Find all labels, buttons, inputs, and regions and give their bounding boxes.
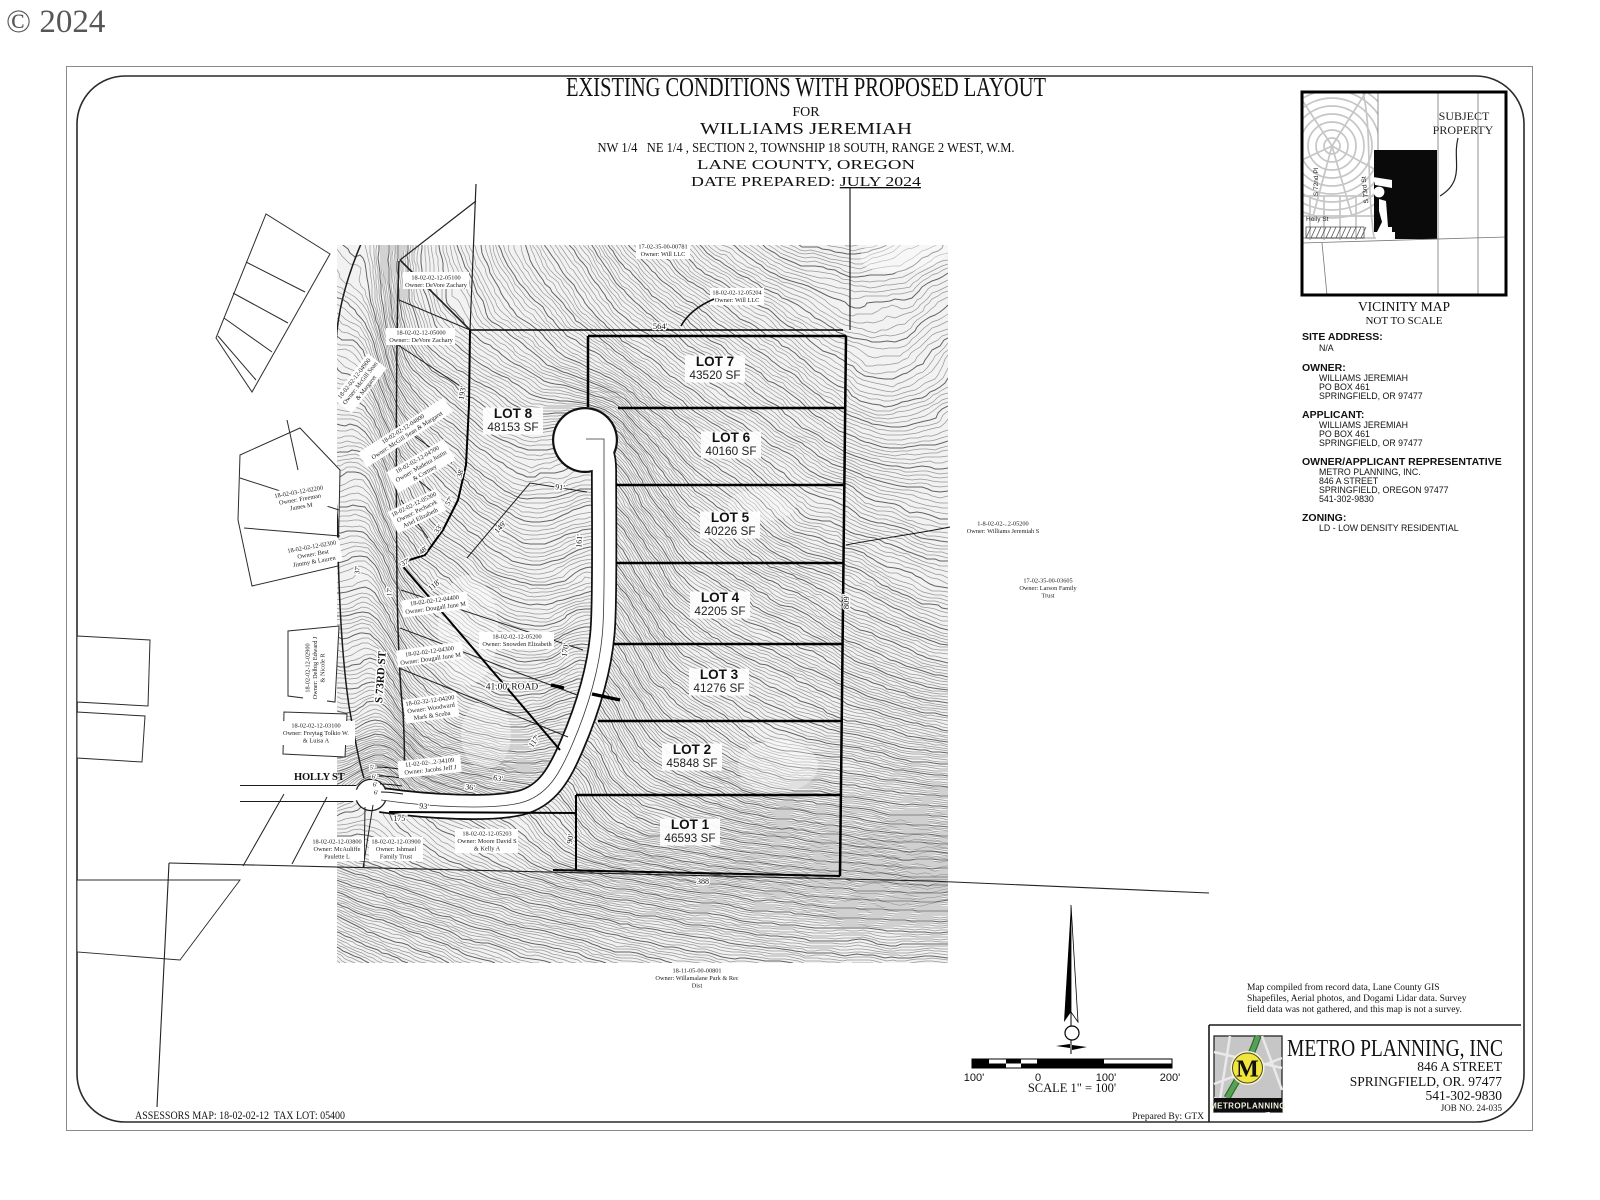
svg-text:PROPERTY: PROPERTY	[1433, 123, 1494, 137]
svg-text:SUBJECT: SUBJECT	[1439, 109, 1490, 123]
svg-text:6': 6'	[373, 781, 377, 788]
svg-text:6': 6'	[372, 773, 376, 780]
svg-text:LOT 1: LOT 1	[671, 817, 710, 832]
svg-text:36': 36'	[465, 782, 476, 792]
svg-text:LOT 7: LOT 7	[696, 354, 734, 369]
svg-text:Map compiled from record data,: Map compiled from record data, Lane Coun…	[1247, 982, 1440, 993]
svg-text:Owner: Ishmael: Owner: Ishmael	[376, 846, 417, 853]
svg-text:Owner: Freytag Tolkio W.: Owner: Freytag Tolkio W.	[283, 730, 349, 737]
svg-text:Holly St: Holly St	[1306, 216, 1329, 223]
svg-text:388: 388	[697, 877, 709, 886]
svg-text:METROPLANNING: METROPLANNING	[1210, 1102, 1286, 1111]
svg-text:FOR: FOR	[792, 105, 820, 120]
svg-text:91': 91'	[555, 482, 566, 492]
svg-text:METRO PLANNING, INC: METRO PLANNING, INC	[1287, 1035, 1503, 1062]
svg-text:& Kelly A: & Kelly A	[474, 846, 501, 853]
svg-text:ASSESSORS MAP: 18-02-02-12 TA: ASSESSORS MAP: 18-02-02-12 TAX LOT: 0540…	[135, 1108, 345, 1122]
svg-text:Owner: Will LLC: Owner: Will LLC	[715, 297, 760, 304]
svg-text:37': 37'	[353, 566, 362, 575]
svg-text:18-02-02-12-05204: 18-02-02-12-05204	[712, 289, 762, 296]
svg-text:846 A STREET: 846 A STREET	[1417, 1059, 1503, 1074]
svg-text:& Luisa A: & Luisa A	[303, 738, 330, 745]
svg-text:17-02-35-00-03605: 17-02-35-00-03605	[1023, 578, 1072, 585]
svg-text:NOT TO SCALE: NOT TO SCALE	[1365, 315, 1442, 327]
svg-text:EXISTING CONDITIONS WITH PROPO: EXISTING CONDITIONS WITH PROPOSED LAYOUT	[566, 72, 1046, 102]
svg-text:Owner: DeVore Zachary: Owner: DeVore Zachary	[405, 282, 468, 289]
svg-text:43520 SF: 43520 SF	[689, 368, 740, 382]
svg-text:NW 1/4 NE 1/4 , SECTION 2, T: NW 1/4 NE 1/4 , SECTION 2, TOWNSHIP 18 S…	[598, 140, 1015, 155]
svg-text:M: M	[1236, 1057, 1259, 1083]
svg-text:48153 SF: 48153 SF	[487, 420, 538, 434]
svg-text:LOT 4: LOT 4	[701, 590, 740, 605]
svg-text:40226 SF: 40226 SF	[704, 524, 755, 538]
svg-text:SITE ADDRESS:: SITE ADDRESS:	[1302, 331, 1383, 343]
svg-text:LOT 8: LOT 8	[494, 406, 533, 421]
svg-text:1-8-02-02-..2-05200: 1-8-02-02-..2-05200	[977, 520, 1028, 527]
svg-text:SPRINGFIELD, OR. 97477: SPRINGFIELD, OR. 97477	[1350, 1074, 1503, 1089]
svg-text:18-02-02-12-05203: 18-02-02-12-05203	[462, 831, 511, 838]
svg-text:18-02-02-12-03900: 18-02-02-12-03900	[371, 839, 420, 846]
svg-text:LOT 6: LOT 6	[712, 430, 751, 445]
svg-text:Owner: Moore David S: Owner: Moore David S	[457, 838, 517, 845]
svg-text:175': 175'	[393, 814, 407, 823]
svg-text:41276 SF: 41276 SF	[693, 681, 744, 695]
svg-text:JOB NO. 24-035: JOB NO. 24-035	[1441, 1103, 1503, 1113]
svg-text:LD - LOW DENSITY RESIDENTIAL: LD - LOW DENSITY RESIDENTIAL	[1319, 523, 1459, 533]
svg-text:41.00' ROAD: 41.00' ROAD	[486, 682, 539, 692]
svg-text:541-302-9830: 541-302-9830	[1319, 494, 1374, 504]
svg-text:Owner: Snowden Elizabeth: Owner: Snowden Elizabeth	[482, 641, 552, 648]
svg-text:LOT 5: LOT 5	[711, 510, 750, 525]
svg-text:6': 6'	[374, 789, 378, 796]
svg-text:564': 564'	[653, 321, 668, 331]
svg-text:LOT 2: LOT 2	[673, 742, 711, 757]
svg-text:Owner: Will LLC: Owner: Will LLC	[641, 251, 686, 258]
svg-text:Prepared By: GTX: Prepared By: GTX	[1132, 1112, 1204, 1122]
svg-text:809': 809'	[841, 594, 851, 609]
svg-text:42205 SF: 42205 SF	[694, 604, 745, 618]
svg-text:VICINITY MAP: VICINITY MAP	[1358, 299, 1450, 314]
svg-text:18-02-02-12-05000: 18-02-02-12-05000	[396, 329, 445, 336]
svg-text:WILLIAMS JEREMIAH: WILLIAMS JEREMIAH	[700, 119, 912, 138]
svg-text:18-02-02-12-05200: 18-02-02-12-05200	[492, 633, 541, 640]
svg-text:17-02-35-00-00781: 17-02-35-00-00781	[638, 243, 687, 250]
svg-text:Owner: Delbig Edward J: Owner: Delbig Edward J	[312, 636, 319, 699]
svg-text:18-11-05-00-00801: 18-11-05-00-00801	[672, 968, 721, 975]
svg-text:& Nicole R: & Nicole R	[320, 653, 327, 683]
svg-text:541-302-9830: 541-302-9830	[1426, 1088, 1503, 1103]
svg-text:Owner: McAuliffe: Owner: McAuliffe	[314, 846, 361, 853]
svg-text:N/A: N/A	[1319, 343, 1334, 353]
svg-text:200': 200'	[1160, 1072, 1180, 1084]
svg-text:Owner:: DeVore Zachary: Owner:: DeVore Zachary	[389, 337, 453, 344]
svg-text:100': 100'	[964, 1072, 984, 1084]
svg-text:LOT 3: LOT 3	[700, 667, 739, 682]
svg-text:93': 93'	[419, 801, 430, 811]
svg-text:18-02-02-12-02900: 18-02-02-12-02900	[305, 643, 312, 692]
svg-text:SPRINGFIELD, OR 97477: SPRINGFIELD, OR 97477	[1319, 391, 1423, 401]
svg-text:Paulette L: Paulette L	[324, 854, 350, 861]
svg-text:Owner: Willamalane Park & Rec: Owner: Willamalane Park & Rec	[655, 975, 738, 982]
svg-text:Owner: Larson Family: Owner: Larson Family	[1019, 585, 1077, 592]
svg-text:Dist: Dist	[692, 983, 703, 990]
svg-text:5': 5'	[370, 764, 374, 771]
svg-text:45848 SF: 45848 SF	[666, 756, 717, 770]
svg-text:Trust: Trust	[1041, 593, 1054, 600]
svg-text:17': 17'	[385, 588, 394, 597]
svg-text:46593 SF: 46593 SF	[664, 831, 715, 845]
svg-text:18-02-02-12-03100: 18-02-02-12-03100	[291, 723, 340, 730]
svg-text:SCALE 1" = 100': SCALE 1" = 100'	[1028, 1081, 1116, 1095]
svg-text:18-02-02-12-03800: 18-02-02-12-03800	[312, 839, 361, 846]
svg-text:LANE COUNTY, OREGON: LANE COUNTY, OREGON	[697, 157, 915, 172]
svg-text:Shapefiles, Aerial photos, and: Shapefiles, Aerial photos, and Dogami Li…	[1247, 993, 1467, 1004]
svg-text:HOLLY ST: HOLLY ST	[294, 772, 345, 783]
svg-text:SPRINGFIELD, OR 97477: SPRINGFIELD, OR 97477	[1319, 438, 1423, 448]
svg-text:18-02-02-12-05100: 18-02-02-12-05100	[411, 274, 460, 281]
svg-text:40160 SF: 40160 SF	[705, 444, 756, 458]
svg-text:Owner: Williams Jeremiah S: Owner: Williams Jeremiah S	[967, 528, 1040, 535]
svg-text:Family Trust: Family Trust	[380, 854, 413, 861]
svg-text:161': 161'	[574, 533, 584, 548]
svg-text:DATE PREPARED: JULY 2024: DATE PREPARED: JULY 2024	[691, 174, 921, 189]
svg-text:S 72nd Pl: S 72nd Pl	[1313, 167, 1320, 196]
svg-text:field data was not gathered, a: field data was not gathered, and this ma…	[1247, 1004, 1462, 1015]
svg-text:© 2024: © 2024	[6, 4, 105, 40]
